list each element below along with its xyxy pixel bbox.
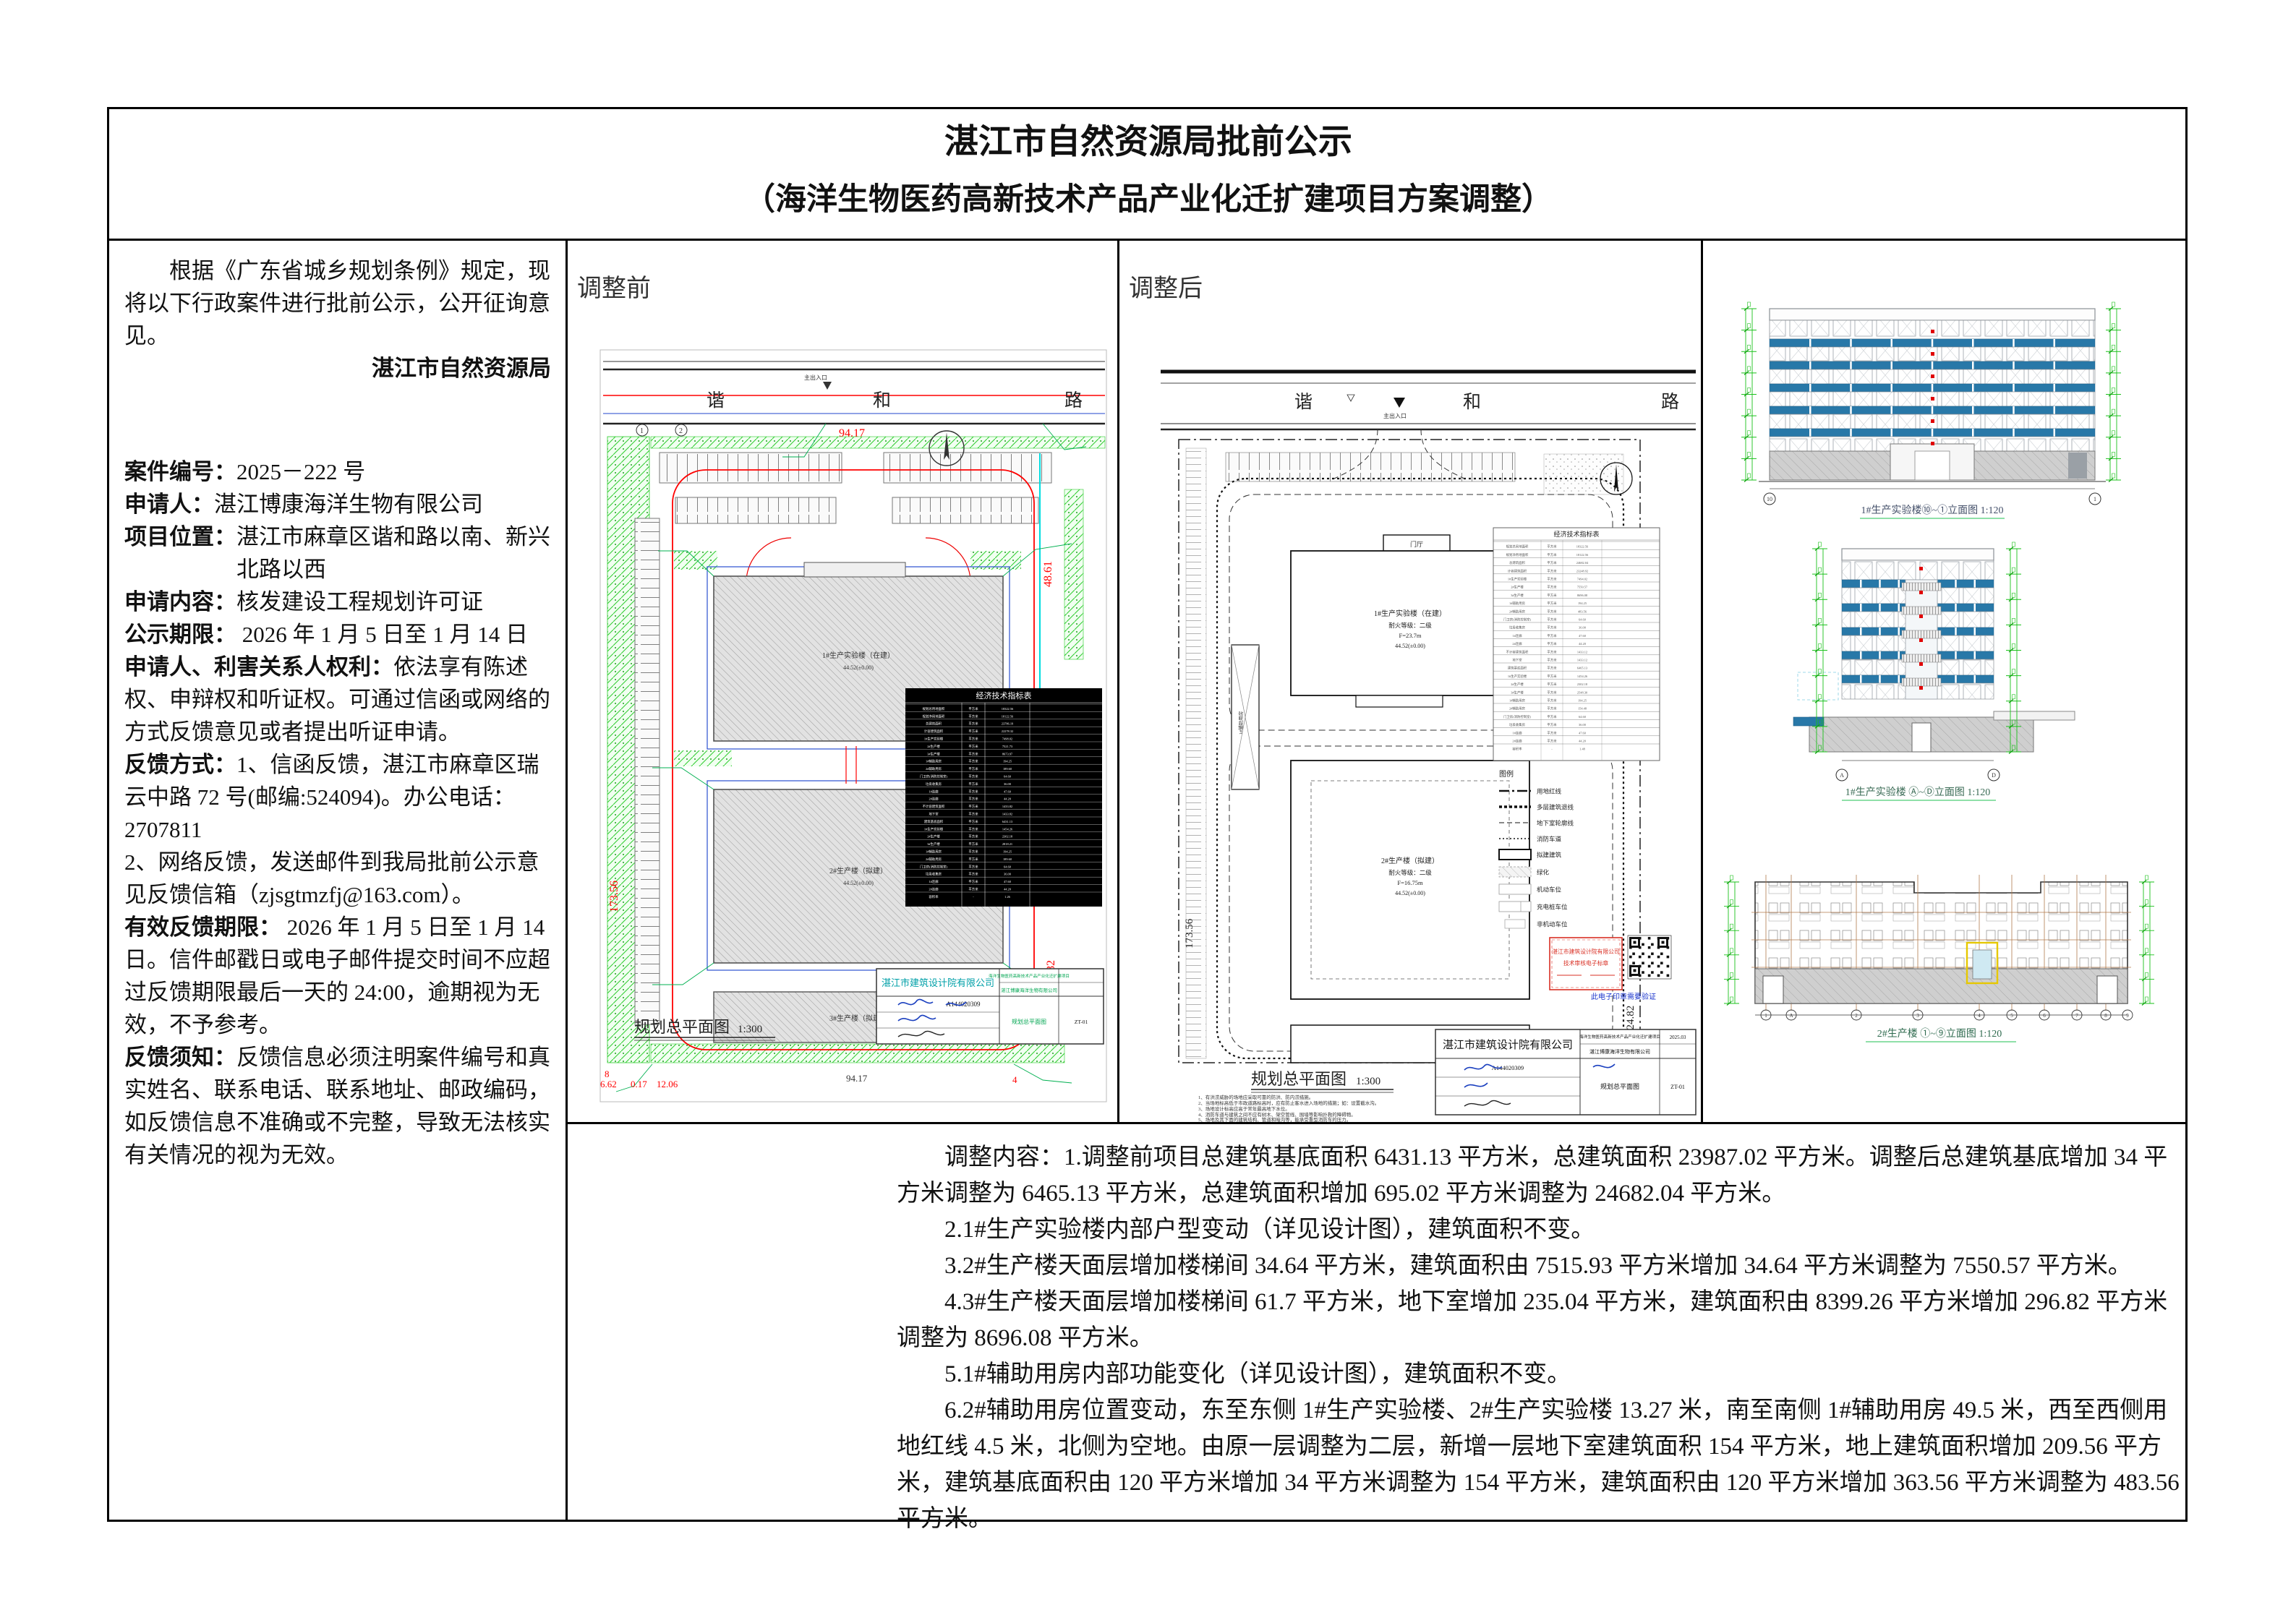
svg-text:3: 3 — [1916, 1013, 1919, 1019]
econ-table-after: 经济技术指标表 规划总用地面积平方米18322.56规划净用地面积平方米1812… — [1493, 528, 1660, 761]
owner-name: 湛江博康海洋生物有限公司 — [1001, 987, 1057, 993]
svg-text:计容建筑面积: 计容建筑面积 — [1508, 568, 1527, 573]
adjustment-paragraph: 5.1#辅助用房内部功能变化（详见设计图），建筑面积不变。 — [897, 1356, 2182, 1392]
plan-caption-after: 规划总平面图 1:300 — [1251, 1070, 1394, 1092]
axis-bubble: A — [1840, 772, 1844, 779]
svg-text:平方米: 平方米 — [1547, 609, 1557, 614]
note: 1、有洪涝威胁的场地应采取可靠的防洪、防内涝措施。 — [1198, 1094, 1313, 1100]
svg-text:平方米: 平方米 — [1547, 577, 1557, 582]
svg-text:平方米: 平方米 — [1547, 617, 1557, 622]
svg-text:地下室: 地下室 — [929, 812, 939, 817]
axis-bubble: 1 — [2094, 496, 2096, 502]
svg-text:47.60: 47.60 — [1004, 880, 1012, 883]
svg-text:平方米: 平方米 — [1547, 706, 1557, 711]
legend-item: 非机动车位 — [1537, 921, 1568, 928]
stamp-line2: 技术审核电子标章 — [1563, 959, 1609, 967]
building-name: 1#生产实验楼（在建） — [822, 651, 895, 660]
field-label: 项目位置： — [124, 524, 236, 549]
axis-bubble: 1 — [640, 427, 644, 435]
field-rights: 申请人、利害关系人权利：依法享有陈述权、申辩权和听证权。可通过信函或网络的方式反… — [124, 651, 558, 748]
legend-item: 消防车道 — [1537, 836, 1562, 843]
bottom-section-divider — [566, 1122, 2188, 1124]
svg-text:64.60: 64.60 — [1579, 715, 1587, 719]
field-applicant: 申请人：湛江博康海洋生物有限公司 — [124, 488, 558, 521]
svg-text:3#生产楼: 3#生产楼 — [927, 751, 940, 756]
building-2: 2#生产楼（拟建） 耐火等级：二级 F=16.75m 44.52(±0.00) — [1291, 761, 1529, 999]
svg-text:垃圾收集房: 垃圾收集房 — [1509, 625, 1526, 630]
field-label: 公示期限： — [124, 622, 236, 647]
svg-text:2#辅助用房: 2#辅助用房 — [926, 766, 942, 771]
svg-text:1#连廊: 1#连廊 — [929, 879, 939, 884]
svg-text:2#连廊: 2#连廊 — [1512, 641, 1522, 646]
svg-text:64.60: 64.60 — [1004, 865, 1012, 868]
field-label: 反馈方式： — [124, 752, 236, 777]
field-label: 申请内容： — [124, 589, 236, 614]
svg-text:1#辅助用房: 1#辅助用房 — [1509, 601, 1526, 606]
note: 2、当场地标高低于市政道路标高时，应有防止客水进入场地的措施；如：设置截水沟。 — [1198, 1100, 1379, 1106]
date: 2025.03 — [1670, 1035, 1686, 1040]
axis-bubble: D — [1992, 772, 1996, 779]
dim-frag: 4 — [1012, 1074, 1017, 1085]
svg-text:1433.82: 1433.82 — [1002, 805, 1012, 808]
svg-text:2#生产楼: 2#生产楼 — [927, 834, 940, 839]
svg-text:3#生产楼: 3#生产楼 — [1511, 593, 1524, 598]
svg-text:2#连廊: 2#连廊 — [1512, 739, 1522, 744]
panel-label-after: 调整后 — [1129, 275, 1203, 302]
svg-text:194.25: 194.25 — [1003, 850, 1012, 854]
field-valid-period: 有效反馈期限： 2026 年 1 月 5 日至 1 月 14 日。信件邮戳日或电… — [124, 911, 558, 1041]
svg-text:规划净用地面积: 规划净用地面积 — [923, 714, 945, 719]
svg-text:3#生产楼: 3#生产楼 — [927, 842, 940, 847]
building-height: F=23.7m — [1399, 632, 1421, 639]
svg-text:平方米: 平方米 — [1547, 730, 1557, 735]
svg-text:平方米: 平方米 — [968, 759, 978, 764]
svg-text:47.60: 47.60 — [1579, 634, 1587, 638]
svg-text:4: 4 — [1978, 1013, 1981, 1019]
svg-text:平方米: 平方米 — [1547, 641, 1557, 646]
road-char: 和 — [873, 390, 891, 411]
page-subtitle: （海洋生物医药高新技术产品产业化迁扩建项目方案调整） — [109, 171, 2188, 230]
dim-frag: 6.62 — [600, 1079, 617, 1089]
svg-text:平方米: 平方米 — [968, 857, 978, 862]
svg-text:7: 7 — [2075, 1013, 2078, 1019]
aux-label: 1#辅助用房 — [1237, 711, 1244, 735]
dim-right-upper: 48.61 — [1042, 561, 1054, 587]
svg-text:规划总用地面积: 规划总用地面积 — [1506, 544, 1529, 549]
svg-text:平方米: 平方米 — [1547, 568, 1557, 573]
svg-text:不计容建筑面积: 不计容建筑面积 — [923, 804, 945, 809]
svg-text:平方米: 平方米 — [1547, 625, 1557, 630]
svg-text:5: 5 — [2010, 1013, 2013, 1019]
svg-text:189.60: 189.60 — [1003, 767, 1012, 771]
building-height: F=16.75m — [1397, 879, 1423, 886]
titleblock-after: 湛江市建筑设计院有限公司 海洋生物医药高新技术产品产业化迁扩建项目 2025.0… — [1435, 1029, 1696, 1115]
elevation-3-label: 2#生产楼 ①~⑨立面图 1:120 — [1877, 1028, 2002, 1040]
axis-bubble: 2 — [679, 427, 683, 435]
svg-text:2818.21: 2818.21 — [1002, 842, 1012, 846]
svg-text:1#连廊: 1#连廊 — [1512, 633, 1522, 638]
legend-item: 用地红线 — [1537, 788, 1562, 795]
svg-text:平方米: 平方米 — [1547, 682, 1557, 687]
field-feedback-method: 反馈方式：1、信函反馈，湛江市麻章区瑞云中路 72 号(邮编:524094)。办… — [124, 748, 558, 846]
edge-strip — [1186, 448, 1206, 1058]
svg-text:2302.18: 2302.18 — [1002, 835, 1013, 839]
svg-text:6: 6 — [2043, 1013, 2046, 1019]
svg-text:7550.57: 7550.57 — [1577, 586, 1588, 589]
svg-text:1454.26: 1454.26 — [1002, 827, 1013, 831]
svg-text:平方米: 平方米 — [968, 804, 978, 809]
legend-title: 图例 — [1499, 769, 1514, 779]
elevation-column: 10 1 1#生产实验楼⑩~①立面图 1:120 A D 1#生产实验楼 Ⓐ~Ⓓ… — [1701, 240, 2190, 1122]
field-notice-period: 公示期限： 2026 年 1 月 5 日至 1 月 14 日 — [124, 618, 558, 651]
entrance-marker-icon — [823, 382, 832, 390]
svg-text:平方米: 平方米 — [968, 781, 978, 787]
svg-text:18322.56: 18322.56 — [1002, 707, 1014, 711]
titleblock-before: 湛江市建筑设计院有限公司 A144020309 海洋生物医药高新技术产品产业化迁… — [876, 969, 1104, 1044]
econ-table-before: 经济技术指标表 规划总用地面积平方米18322.56规划净用地面积平方米1812… — [905, 688, 1102, 907]
owner-name: 湛江博康海洋生物有限公司 — [1589, 1048, 1650, 1055]
svg-text:平方米: 平方米 — [1547, 601, 1557, 606]
svg-text:平方米: 平方米 — [1547, 552, 1557, 557]
svg-text:36.00: 36.00 — [1004, 782, 1012, 786]
svg-text:2#生产楼: 2#生产楼 — [927, 744, 940, 749]
field-value: 2025－222 号 — [236, 459, 365, 484]
legend-item: 拟建建筑 — [1537, 852, 1562, 859]
legend-item: 多层建筑退线 — [1537, 804, 1574, 811]
svg-text:平方米: 平方米 — [1547, 722, 1557, 727]
panel-label-before: 调整前 — [577, 275, 651, 302]
stamp-caption: 此电子印章需要验证 — [1591, 992, 1656, 1001]
svg-text:平方米: 平方米 — [968, 849, 978, 855]
svg-text:平方米: 平方米 — [1547, 658, 1557, 663]
table-title: 经济技术指标表 — [976, 690, 1032, 701]
svg-text:44.20: 44.20 — [1004, 888, 1012, 891]
svg-text:36.00: 36.00 — [1579, 723, 1587, 727]
svg-text:2#辅助用房: 2#辅助用房 — [926, 857, 942, 862]
svg-text:7498.02: 7498.02 — [1002, 737, 1012, 741]
green-speckle — [1544, 454, 1623, 494]
svg-text:平方米: 平方米 — [1547, 633, 1557, 638]
notice-text-column: 根据《广东省城乡规划条例》规定，现将以下行政案件进行批前公示，公开征询意见。 湛… — [124, 254, 558, 1171]
svg-text:平方米: 平方米 — [968, 842, 978, 847]
canopy-arc — [746, 538, 791, 580]
svg-text:1#连廊: 1#连廊 — [1512, 730, 1522, 735]
svg-text:44.20: 44.20 — [1004, 797, 1012, 801]
svg-text:平方米: 平方米 — [968, 721, 978, 727]
svg-text:平方米: 平方米 — [1547, 560, 1557, 565]
svg-text:36.00: 36.00 — [1579, 626, 1587, 630]
adjustment-paragraph: 2.1#生产实验楼内部户型变动（详见设计图），建筑面积不变。 — [897, 1212, 2182, 1248]
svg-text:64.60: 64.60 — [1004, 775, 1012, 779]
svg-text:2: 2 — [1855, 1013, 1858, 1019]
svg-text:2#连廊: 2#连廊 — [929, 797, 939, 802]
svg-text:平方米: 平方米 — [968, 714, 978, 719]
svg-text:A: A — [1789, 1013, 1793, 1019]
plan-label: 规划总平面图 — [1251, 1070, 1347, 1088]
svg-text:6431.13: 6431.13 — [1002, 820, 1013, 823]
building-name: 2#生产楼（拟建） — [1381, 856, 1439, 865]
field-value: 湛江博康海洋生物有限公司 — [214, 492, 483, 517]
svg-text:平方米: 平方米 — [968, 766, 978, 771]
dim-frag: 12.06 — [657, 1079, 678, 1089]
svg-text:门卫房(消防控制室): 门卫房(消防控制室) — [1503, 617, 1532, 622]
field-label: 反馈须知： — [124, 1045, 236, 1070]
svg-text:1454.26: 1454.26 — [1577, 675, 1588, 678]
field-feedback-method-2: 2、网络反馈，发送邮件到我局批前公示意见反馈信箱（zjsgtmzfj@163.c… — [124, 846, 558, 911]
svg-text:门卫房(消防控制室): 门卫房(消防控制室) — [920, 864, 948, 869]
svg-text:1.48: 1.48 — [1579, 748, 1585, 751]
svg-text:2#辅助用房: 2#辅助用房 — [1509, 609, 1526, 614]
svg-text:平方米: 平方米 — [1547, 714, 1557, 719]
svg-text:建筑基底面积: 建筑基底面积 — [1508, 666, 1527, 671]
adjustment-paragraph: 3.2#生产楼天面层增加楼梯间 34.64 平方米，建筑面积由 7515.93 … — [897, 1248, 2182, 1284]
plan-label: 规划总平面图 — [634, 1018, 730, 1036]
svg-text:1433.12: 1433.12 — [1577, 650, 1587, 654]
svg-text:垃圾收集房: 垃圾收集房 — [1509, 722, 1526, 727]
svg-text:平方米: 平方米 — [1547, 544, 1557, 549]
svg-text:18122.56: 18122.56 — [1002, 714, 1014, 718]
adjustment-paragraph: 4.3#生产楼天面层增加楼梯间 61.7 平方米，地下室增加 235.04 平方… — [897, 1284, 2182, 1356]
elevation-2: A D 1#生产实验楼 Ⓐ~Ⓓ立面图 1:120 — [1793, 542, 2075, 800]
dim-frag: 0.17 — [631, 1079, 647, 1089]
entrance-marker-icon — [1394, 398, 1405, 408]
building-name: 1#生产实验楼（在建） — [1374, 609, 1446, 618]
svg-text:平方米: 平方米 — [968, 872, 978, 877]
svg-text:平方米: 平方米 — [968, 744, 978, 749]
svg-text:平方米: 平方米 — [968, 834, 978, 839]
field-label: 申请人、利害关系人权利： — [124, 654, 393, 680]
svg-text:总建筑面积: 总建筑面积 — [1509, 560, 1526, 565]
svg-text:规划总用地面积: 规划总用地面积 — [923, 706, 945, 711]
parking-column — [635, 518, 660, 1024]
svg-text:1#辅助用房: 1#辅助用房 — [926, 849, 942, 855]
sheet-no: ZT-01 — [1670, 1084, 1685, 1090]
svg-text:平方米: 平方米 — [968, 887, 978, 892]
canopy-arc — [926, 538, 970, 580]
dim-left: 173.56 — [1184, 918, 1195, 948]
svg-text:64.60: 64.60 — [1579, 618, 1587, 622]
stamp-line1: 湛江市建筑设计院有限公司 — [1552, 948, 1620, 955]
building-level: 44.52(±0.00) — [843, 664, 874, 671]
issuing-authority: 湛江市自然资源局 — [124, 352, 558, 385]
field-value: 2026 年 1 月 5 日至 1 月 14 日 — [236, 622, 528, 647]
fire-grade: 耐火等级：二级 — [1388, 622, 1432, 629]
svg-text:容积率: 容积率 — [929, 894, 939, 899]
building-level: 44.52(±0.00) — [1395, 890, 1425, 896]
notice-intro: 根据《广东省城乡规划条例》规定，现将以下行政案件进行批前公示，公开征询意见。 — [124, 254, 558, 352]
svg-text:1#辅助用房: 1#辅助用房 — [1509, 698, 1526, 703]
svg-text:计容建筑面积: 计容建筑面积 — [924, 729, 944, 734]
svg-text:8: 8 — [2104, 1013, 2107, 1019]
svg-text:地下室: 地下室 — [1512, 658, 1522, 663]
svg-text:平方米: 平方米 — [968, 751, 978, 756]
entrance-label: 主出入口 — [804, 374, 827, 381]
elevation-1-label: 1#生产实验楼⑩~①立面图 1:120 — [1861, 505, 2004, 516]
svg-text:7521.73: 7521.73 — [1002, 745, 1013, 748]
parking-rows — [660, 453, 1051, 523]
svg-text:1.26: 1.26 — [1004, 895, 1010, 899]
svg-text:平方米: 平方米 — [968, 812, 978, 817]
svg-text:平方米: 平方米 — [968, 706, 978, 711]
svg-text:平方米: 平方米 — [1547, 690, 1557, 695]
design-institute: 湛江市建筑设计院有限公司 — [1443, 1038, 1573, 1051]
road-char: 路 — [1661, 392, 1679, 412]
svg-text:2#辅助用房: 2#辅助用房 — [1509, 706, 1526, 711]
svg-text:1#连廊: 1#连廊 — [929, 789, 939, 794]
svg-text:1433.12: 1433.12 — [1577, 659, 1587, 662]
svg-text:7494.02: 7494.02 — [1577, 578, 1587, 581]
note: 5、场地及其下面的建筑结构、管道和暗沟等，能承受重型消防车的压力。 — [1198, 1116, 1351, 1122]
dim-bottom-cluster: 8 6.62 0.17 12.06 4 — [600, 1069, 1017, 1089]
drawing-name: 规划总平面图 — [1600, 1082, 1639, 1090]
svg-text:平方米: 平方米 — [968, 864, 978, 869]
field-value: 2、网络反馈，发送邮件到我局批前公示意见反馈信箱（zjsgtmzfj@163.c… — [124, 849, 539, 907]
svg-text:平方米: 平方米 — [968, 879, 978, 884]
svg-text:22278.32: 22278.32 — [1002, 729, 1013, 733]
svg-text:平方米: 平方米 — [1547, 593, 1557, 598]
svg-text:47.60: 47.60 — [1579, 731, 1587, 735]
field-label: 案件编号： — [124, 459, 236, 484]
elevation-1: 10 1 1#生产实验楼⑩~①立面图 1:120 — [1741, 302, 2121, 518]
svg-text:平方米: 平方米 — [968, 819, 978, 824]
field-value: 湛江市麻章区谐和路以南、新兴北路以西 — [236, 524, 550, 582]
svg-text:总建筑面积: 总建筑面积 — [926, 721, 942, 727]
svg-text:194.25: 194.25 — [1003, 760, 1012, 763]
svg-text:2#生产楼: 2#生产楼 — [1511, 585, 1524, 590]
road-char: 路 — [1064, 390, 1083, 411]
note: 4、消防车道与建筑之间不应有树木、架空管线、围墙等影响扑救的障碍物。 — [1198, 1111, 1356, 1118]
svg-text:平方米: 平方米 — [968, 774, 978, 779]
building-level: 44.52(±0.00) — [1395, 643, 1425, 649]
field-label: 申请人： — [124, 492, 214, 517]
plan-scale: 1:300 — [1356, 1076, 1380, 1087]
svg-text:483.56: 483.56 — [1578, 609, 1587, 613]
svg-text:门卫房(消防控制室): 门卫房(消防控制室) — [1503, 714, 1532, 719]
svg-text:1#辅助用房: 1#辅助用房 — [926, 759, 942, 764]
svg-text:垃圾收集房: 垃圾收集房 — [926, 781, 942, 787]
field-feedback-notes: 反馈须知：反馈信息必须注明案件编号和真实姓名、联系电话、联系地址、邮政编码，如反… — [124, 1041, 558, 1171]
svg-text:平方米: 平方米 — [1547, 698, 1557, 703]
road-char: 谐 — [707, 390, 725, 411]
svg-text:平方米: 平方米 — [1547, 666, 1557, 671]
drawing-name: 规划总平面图 — [1012, 1018, 1046, 1025]
legend-item: 充电桩车位 — [1537, 904, 1568, 911]
svg-text:平方米: 平方米 — [968, 797, 978, 802]
building-name: 2#生产楼（拟建） — [829, 866, 887, 875]
svg-text:154.48: 154.48 — [1578, 707, 1587, 711]
page-title: 湛江市自然资源局批前公示 — [109, 114, 2188, 171]
svg-text:平方米: 平方米 — [1547, 585, 1557, 590]
svg-text:44.20: 44.20 — [1579, 642, 1587, 646]
adjustment-content: 调整内容：1.调整前项目总建筑基底面积 6431.13 平方米，总建筑面积 23… — [897, 1139, 2182, 1537]
svg-text:容积率: 容积率 — [1512, 747, 1522, 752]
lobby-label: 门厅 — [1410, 540, 1423, 548]
elevation-3: 1A23456789 2#生产楼 ①~⑨立面图 1:120 — [1724, 875, 2154, 1042]
svg-text:9: 9 — [2126, 1013, 2129, 1019]
field-case-number: 案件编号：2025－222 号 — [124, 455, 558, 488]
svg-text:平方米: 平方米 — [968, 826, 978, 831]
road-band: 谐 和 路 主出入口 94.17 1 2 — [603, 361, 1105, 440]
svg-text:6465.13: 6465.13 — [1577, 667, 1588, 670]
svg-text:2302.18: 2302.18 — [1577, 682, 1588, 686]
svg-text:8696.08: 8696.08 — [1577, 594, 1588, 597]
site-plan-before: 调整前 谐 和 路 主出入口 94.17 1 2 — [566, 240, 1117, 1122]
plan-scale: 1:300 — [738, 1024, 762, 1035]
svg-text:23248.92: 23248.92 — [1576, 569, 1588, 573]
field-value: 核发建设工程规划许可证 — [236, 589, 483, 614]
fire-grade: 耐火等级：二级 — [1388, 869, 1432, 876]
plan-notes: 1、有洪涝威胁的场地应采取可靠的防洪、防内涝措施。 2、当场地标高低于市政道路标… — [1198, 1094, 1379, 1122]
svg-text:平方米: 平方米 — [968, 737, 978, 742]
aux-building: 1#辅助用房 — [1232, 645, 1259, 789]
svg-text:194.25: 194.25 — [1578, 601, 1587, 605]
svg-text:18122.56: 18122.56 — [1576, 553, 1589, 557]
svg-text:平方米: 平方米 — [968, 789, 978, 794]
table-title: 经济技术指标表 — [1553, 530, 1599, 538]
svg-text:垃圾收集房: 垃圾收集房 — [926, 872, 942, 877]
svg-text:2548.30: 2548.30 — [1577, 690, 1588, 694]
svg-text:平方米: 平方米 — [1547, 649, 1557, 654]
legend-item: 地下室轮廓线 — [1537, 820, 1574, 827]
svg-text:平方米: 平方米 — [1547, 739, 1557, 744]
svg-text:24682.04: 24682.04 — [1576, 561, 1589, 565]
adjustment-paragraph: 6.2#辅助用房位置变动，东至东侧 1#生产实验楼、2#生产实验楼 13.27 … — [897, 1392, 2182, 1537]
svg-text:47.60: 47.60 — [1004, 789, 1012, 793]
note: 3、场地设计标高应高于常年最高地下水位。 — [1198, 1105, 1290, 1112]
svg-text:1: 1 — [1764, 1013, 1767, 1019]
svg-text:194.25: 194.25 — [1578, 699, 1587, 703]
entrance-label: 主出入口 — [1383, 412, 1407, 419]
project-name: 海洋生物医药高新技术产品产业化迁扩建项目 — [1579, 1034, 1660, 1040]
svg-text:建筑基底面积: 建筑基底面积 — [924, 819, 944, 824]
legend-item: 机动车位 — [1537, 886, 1562, 894]
road-band: 谐 和 路 主出入口 — [1161, 372, 1696, 429]
svg-text:36.00: 36.00 — [1004, 873, 1012, 876]
svg-text:1#生产实验楼: 1#生产实验楼 — [1508, 674, 1527, 679]
svg-text:1#生产实验楼: 1#生产实验楼 — [1508, 577, 1527, 582]
approval-stamp: 湛江市建筑设计院有限公司 技术审核电子标章 — [1550, 938, 1622, 990]
svg-text:1#生产实验楼: 1#生产实验楼 — [924, 737, 944, 742]
elevation-2-label: 1#生产实验楼 Ⓐ~Ⓓ立面图 1:120 — [1845, 787, 1990, 798]
legend-item: 绿化 — [1537, 869, 1550, 876]
building-level: 44.52(±0.00) — [843, 880, 874, 886]
field-label: 有效反馈期限： — [124, 915, 281, 940]
svg-text:3#生产楼: 3#生产楼 — [1511, 690, 1524, 695]
svg-text:44.20: 44.20 — [1579, 740, 1587, 743]
svg-text:23786.19: 23786.19 — [1002, 722, 1014, 726]
svg-text:2#生产楼: 2#生产楼 — [1511, 682, 1524, 687]
road-char: 谐 — [1294, 392, 1313, 412]
svg-text:1433.82: 1433.82 — [1002, 813, 1012, 816]
svg-text:规划净用地面积: 规划净用地面积 — [1506, 552, 1529, 557]
svg-text:18322.56: 18322.56 — [1576, 545, 1589, 549]
qr-code — [1628, 935, 1671, 979]
site-plan-after: 调整后 谐 和 路 主出入口 门厅 1#生产实验楼（在建） 耐火等级：二级 F=… — [1117, 240, 1701, 1122]
project-name: 海洋生物医药高新技术产品产业化迁扩建项目 — [989, 973, 1070, 979]
svg-text:2#连廊: 2#连廊 — [929, 887, 939, 892]
svg-text:门卫房(消防控制室): 门卫房(消防控制室) — [920, 774, 948, 779]
parking-row — [1226, 453, 1515, 481]
road-char: 和 — [1463, 392, 1481, 412]
design-institute: 湛江市建筑设计院有限公司 — [882, 977, 994, 988]
dim-frag: 8 — [605, 1069, 610, 1079]
dim-left: 173.56 — [608, 881, 620, 912]
field-content: 申请内容：核发建设工程规划许可证 — [124, 586, 558, 618]
svg-text:平方米: 平方米 — [1547, 674, 1557, 679]
svg-text:1#生产实验楼: 1#生产实验楼 — [924, 826, 944, 831]
svg-text:平方米: 平方米 — [968, 729, 978, 734]
spacer — [124, 385, 558, 455]
